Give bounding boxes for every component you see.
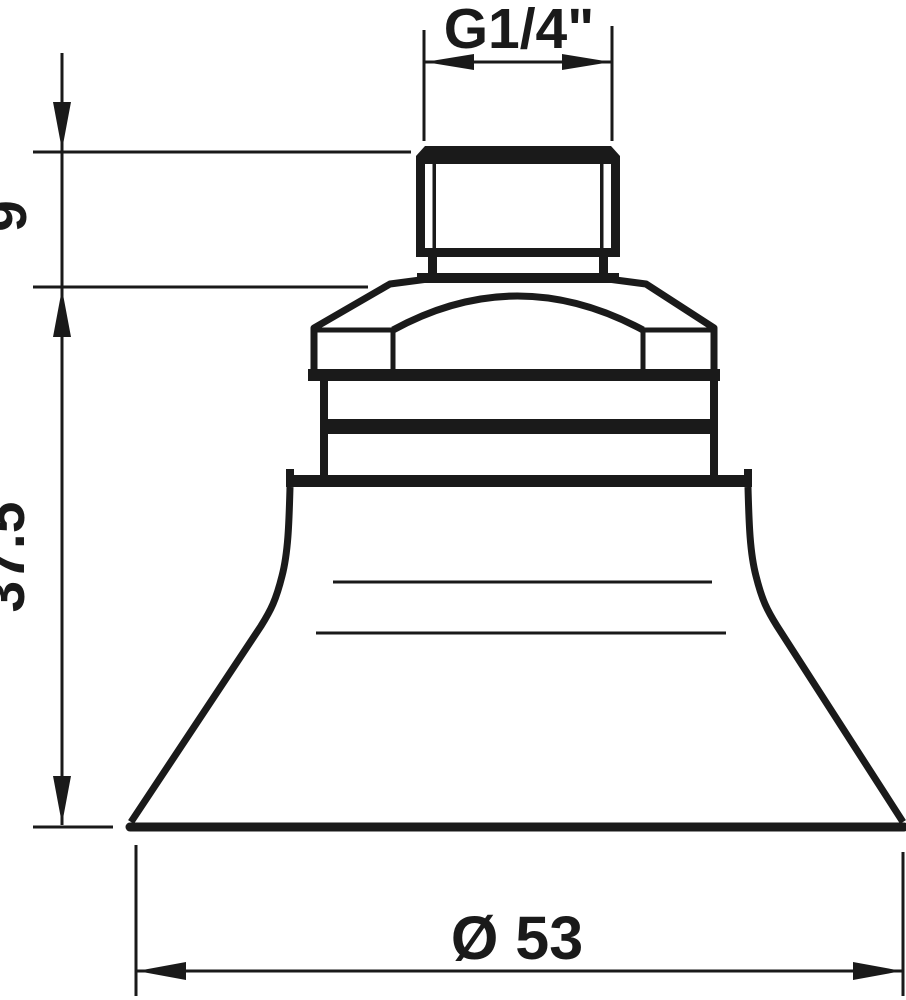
cup-diameter-label: Ø 53 [451, 904, 583, 972]
drawing-svg: G1/4" 9 37.5 Ø 53 [0, 0, 906, 1000]
nut-bottom-bar [308, 369, 720, 381]
thread-right-wall [611, 158, 620, 256]
thread-size-label: G1/4" [444, 0, 595, 61]
thread-inner-right-line [600, 160, 604, 252]
diameter-arrow-right [853, 962, 902, 980]
nut-top-band [417, 273, 619, 283]
arrow-down-cup-bottom [53, 776, 71, 824]
spacer-cylinder [320, 378, 718, 476]
technical-drawing-canvas: G1/4" 9 37.5 Ø 53 [0, 0, 906, 1000]
diameter-arrow-left [137, 962, 186, 980]
arrow-up-nut-top [53, 289, 71, 337]
fitting-height-label: 9 [0, 200, 39, 232]
cylinder-middle-band [320, 419, 718, 434]
cup-top-plate [286, 469, 752, 487]
cup-right-profile [748, 487, 903, 822]
thread-inner-left-line [433, 160, 437, 252]
total-height-label: 37.5 [0, 502, 37, 613]
threaded-fitting [416, 146, 620, 280]
suction-cup-part [130, 146, 904, 827]
cup-body [130, 469, 904, 827]
arrow-down-thread-top [53, 102, 71, 150]
cup-left-profile [131, 487, 290, 822]
diameter-dimension: Ø 53 [136, 845, 903, 996]
hex-nut [308, 273, 720, 381]
thread-top-bar [416, 146, 620, 164]
thread-dimension: G1/4" [424, 0, 612, 141]
thread-bottom-bar [416, 248, 620, 257]
thread-left-wall [416, 158, 425, 256]
